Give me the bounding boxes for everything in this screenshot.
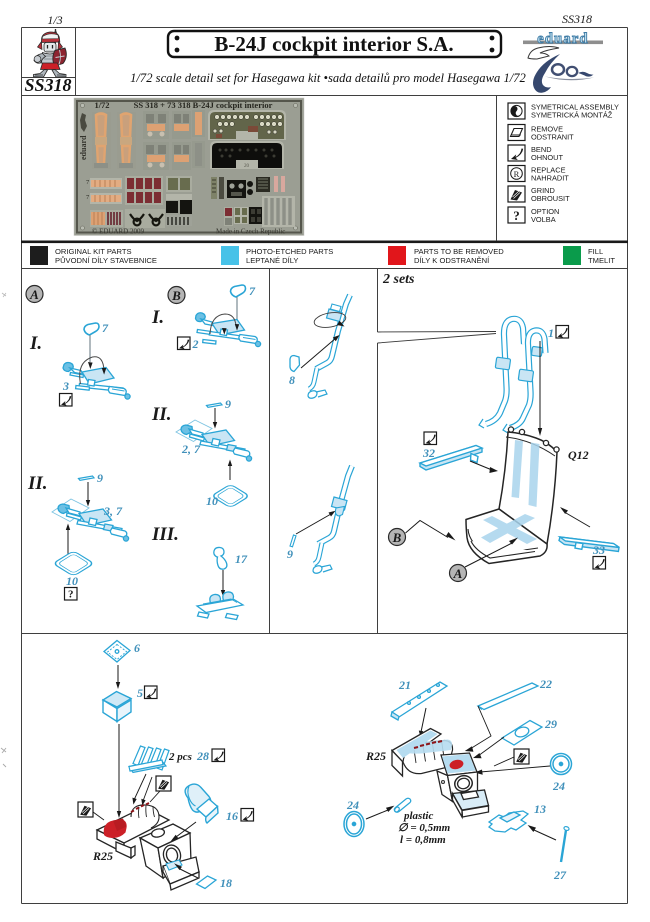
- svg-text:PARTS TO BE REMOVED: PARTS TO BE REMOVED: [414, 247, 504, 256]
- svg-text:DÍLY K ODSTRANĚNÍ: DÍLY K ODSTRANĚNÍ: [414, 256, 490, 265]
- svg-text:FILL: FILL: [588, 247, 603, 256]
- svg-text:Made in Czech Republic: Made in Czech Republic: [216, 228, 285, 236]
- svg-text:33: 33: [592, 543, 605, 557]
- svg-text:© EDUARD 2009: © EDUARD 2009: [92, 228, 144, 236]
- svg-text:1/72: 1/72: [94, 100, 109, 110]
- svg-text:32: 32: [422, 446, 435, 460]
- svg-text:1: 1: [548, 326, 554, 340]
- svg-text:I.: I.: [151, 307, 164, 328]
- svg-text:plastic: plastic: [403, 810, 433, 822]
- svg-text:SS318: SS318: [562, 12, 592, 26]
- svg-text:3, 7: 3, 7: [103, 504, 123, 518]
- svg-text:24: 24: [552, 779, 565, 793]
- svg-text:16: 16: [226, 809, 238, 823]
- svg-text:B: B: [171, 288, 181, 303]
- svg-text:A: A: [453, 566, 463, 581]
- svg-text:VOLBA: VOLBA: [531, 215, 556, 224]
- svg-text:LEPTANÉ DÍLY: LEPTANÉ DÍLY: [246, 256, 298, 265]
- svg-text:1/72 scale detail set for Hase: 1/72 scale detail set for Hasegawa kit •…: [130, 71, 526, 85]
- svg-text:B-24J cockpit interior S.A.: B-24J cockpit interior S.A.: [214, 32, 453, 56]
- svg-text:9: 9: [225, 397, 231, 411]
- svg-text:24: 24: [346, 798, 359, 812]
- svg-text:2 sets: 2 sets: [382, 272, 415, 287]
- svg-text:2, 7: 2, 7: [181, 442, 201, 456]
- svg-text:5: 5: [137, 686, 143, 700]
- svg-text:eduard: eduard: [537, 31, 589, 47]
- svg-text:SS 318 + 73 318 B-24J cockpit: SS 318 + 73 318 B-24J cockpit interior: [134, 100, 273, 110]
- svg-text:1/3: 1/3: [47, 13, 62, 27]
- svg-text:II.: II.: [151, 404, 172, 425]
- svg-text:28: 28: [196, 749, 209, 763]
- svg-text:3: 3: [62, 379, 69, 393]
- svg-text:eduard: eduard: [79, 135, 88, 160]
- svg-text:ODSTRANIT: ODSTRANIT: [531, 133, 574, 142]
- svg-text:13: 13: [534, 802, 546, 816]
- svg-text:27: 27: [553, 868, 567, 882]
- svg-text:SS318: SS318: [24, 75, 71, 95]
- svg-text:7: 7: [249, 284, 256, 298]
- svg-text:29: 29: [544, 717, 557, 731]
- svg-text:Q12: Q12: [568, 448, 589, 462]
- svg-text:OBROUSIT: OBROUSIT: [531, 194, 570, 203]
- svg-text:∅ = 0,5mm: ∅ = 0,5mm: [398, 822, 451, 834]
- svg-text:R25: R25: [92, 849, 113, 863]
- svg-text:B: B: [392, 530, 402, 545]
- svg-text:A: A: [29, 287, 39, 302]
- svg-text:NAHRADIT: NAHRADIT: [531, 174, 569, 183]
- svg-text:9: 9: [97, 471, 103, 485]
- svg-text:II.: II.: [27, 473, 48, 494]
- svg-text:10: 10: [206, 494, 218, 508]
- svg-text:ORIGINAL KIT PARTS: ORIGINAL KIT PARTS: [55, 247, 132, 256]
- svg-text:20: 20: [244, 164, 250, 169]
- svg-text:SYMETRICKÁ MONTÁŽ: SYMETRICKÁ MONTÁŽ: [531, 111, 613, 120]
- svg-text:9: 9: [287, 547, 293, 561]
- svg-text:OHNOUT: OHNOUT: [531, 153, 564, 162]
- svg-text:?: ?: [513, 208, 520, 223]
- svg-text:PHOTO-ETCHED PARTS: PHOTO-ETCHED PARTS: [246, 247, 333, 256]
- svg-text:8: 8: [289, 373, 295, 387]
- svg-text:2: 2: [192, 337, 199, 351]
- svg-text:I.: I.: [29, 333, 42, 354]
- svg-text:6: 6: [134, 641, 140, 655]
- svg-text:2 pcs: 2 pcs: [168, 751, 192, 763]
- svg-text:TMELIT: TMELIT: [588, 256, 615, 265]
- svg-text:R25: R25: [365, 749, 386, 763]
- svg-text:PŮVODNÍ DÍLY STAVEBNICE: PŮVODNÍ DÍLY STAVEBNICE: [55, 256, 157, 265]
- svg-text:10: 10: [66, 574, 78, 588]
- svg-text:17: 17: [235, 552, 248, 566]
- svg-text:22: 22: [539, 677, 552, 691]
- svg-text:18: 18: [220, 876, 232, 890]
- svg-text:7: 7: [102, 321, 109, 335]
- svg-text:21: 21: [398, 678, 411, 692]
- svg-text:l = 0,8mm: l = 0,8mm: [400, 834, 446, 846]
- svg-text:III.: III.: [151, 524, 179, 545]
- svg-text:R: R: [514, 169, 520, 179]
